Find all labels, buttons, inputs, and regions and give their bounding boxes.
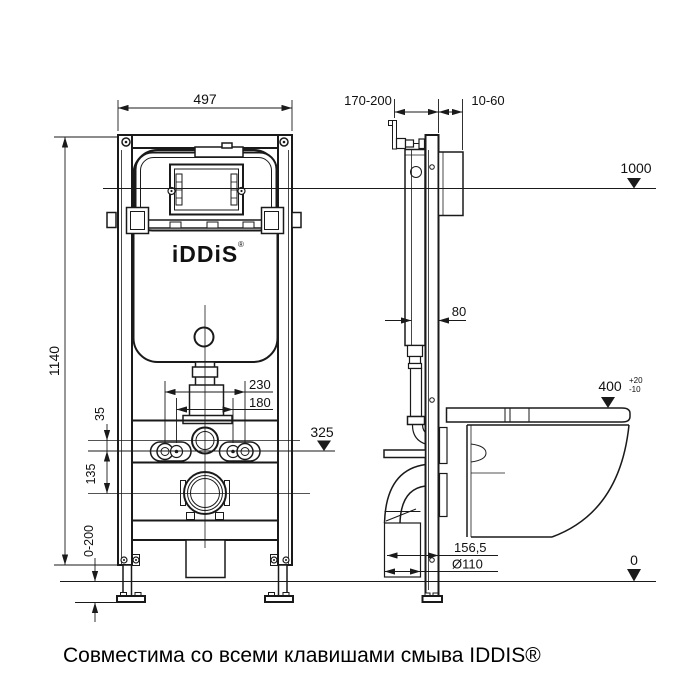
dim-drain-offset: 135: [84, 464, 98, 485]
bowl-inlet-detail: [471, 444, 486, 462]
level-label-400: 400: [598, 378, 622, 394]
technical-drawing-page: iDDiS ®: [0, 0, 700, 700]
logo-registered-mark: ®: [238, 240, 244, 249]
frame-rail-side: [423, 135, 464, 602]
toilet-bowl-side: [440, 408, 631, 537]
dim-profile-depth: 80: [452, 304, 466, 319]
level-label-0: 0: [630, 552, 638, 568]
level-label-325: 325: [310, 424, 334, 440]
iddis-logo: iDDiS: [172, 241, 238, 267]
dim-leg-adjustment: 0-200: [82, 525, 96, 557]
compatibility-caption: Совместима со всеми клавишами смыва IDDI…: [63, 644, 541, 667]
support-bracket: [384, 450, 426, 458]
bowl-front-curve: [552, 425, 629, 537]
mounting-stud-upper: [440, 428, 448, 464]
side-view: [384, 121, 630, 603]
level-marker-1000: [627, 178, 641, 189]
dim-outlet-to-wall: 156,5: [454, 540, 487, 555]
left-pipe-clip: [107, 213, 116, 228]
dim-anchor-outer: 230: [249, 377, 271, 392]
dim-wall-clearance: 10-60: [471, 93, 504, 108]
caption-row: Совместима со всеми клавишами смыва IDDI…: [63, 644, 541, 668]
drain-outlet-box: [186, 540, 225, 578]
mounting-stud-lower: [440, 474, 448, 517]
installation-frame-drawing: iDDiS ®: [0, 0, 700, 700]
level-marker-400: [601, 397, 615, 408]
dim-frame-width: 497: [193, 91, 217, 107]
water-supply-pipe: [389, 121, 425, 150]
dim-inlet-offset: 35: [93, 407, 107, 421]
flush-plate-access-box: [439, 152, 464, 216]
dim-outlet-diameter: Ø110: [452, 557, 483, 572]
level-label-1000: 1000: [620, 160, 651, 176]
level-marker-0: [627, 569, 641, 582]
outlet-pipe-box: [385, 523, 421, 577]
right-pipe-clip: [292, 213, 301, 228]
dim-frame-height: 1140: [46, 346, 62, 376]
dim-anchor-inner: 180: [249, 395, 271, 410]
flush-pipe-front: [183, 362, 232, 424]
front-view: iDDiS ®: [88, 135, 310, 602]
seat-profile: [447, 408, 631, 422]
level-marker-325: [317, 441, 331, 452]
level-label-400-tol-minus: -10: [629, 385, 641, 394]
drain-elbow-side: [384, 450, 426, 577]
level-label-400-tol-plus: +20: [629, 376, 643, 385]
dim-depth-range: 170-200: [344, 93, 392, 108]
